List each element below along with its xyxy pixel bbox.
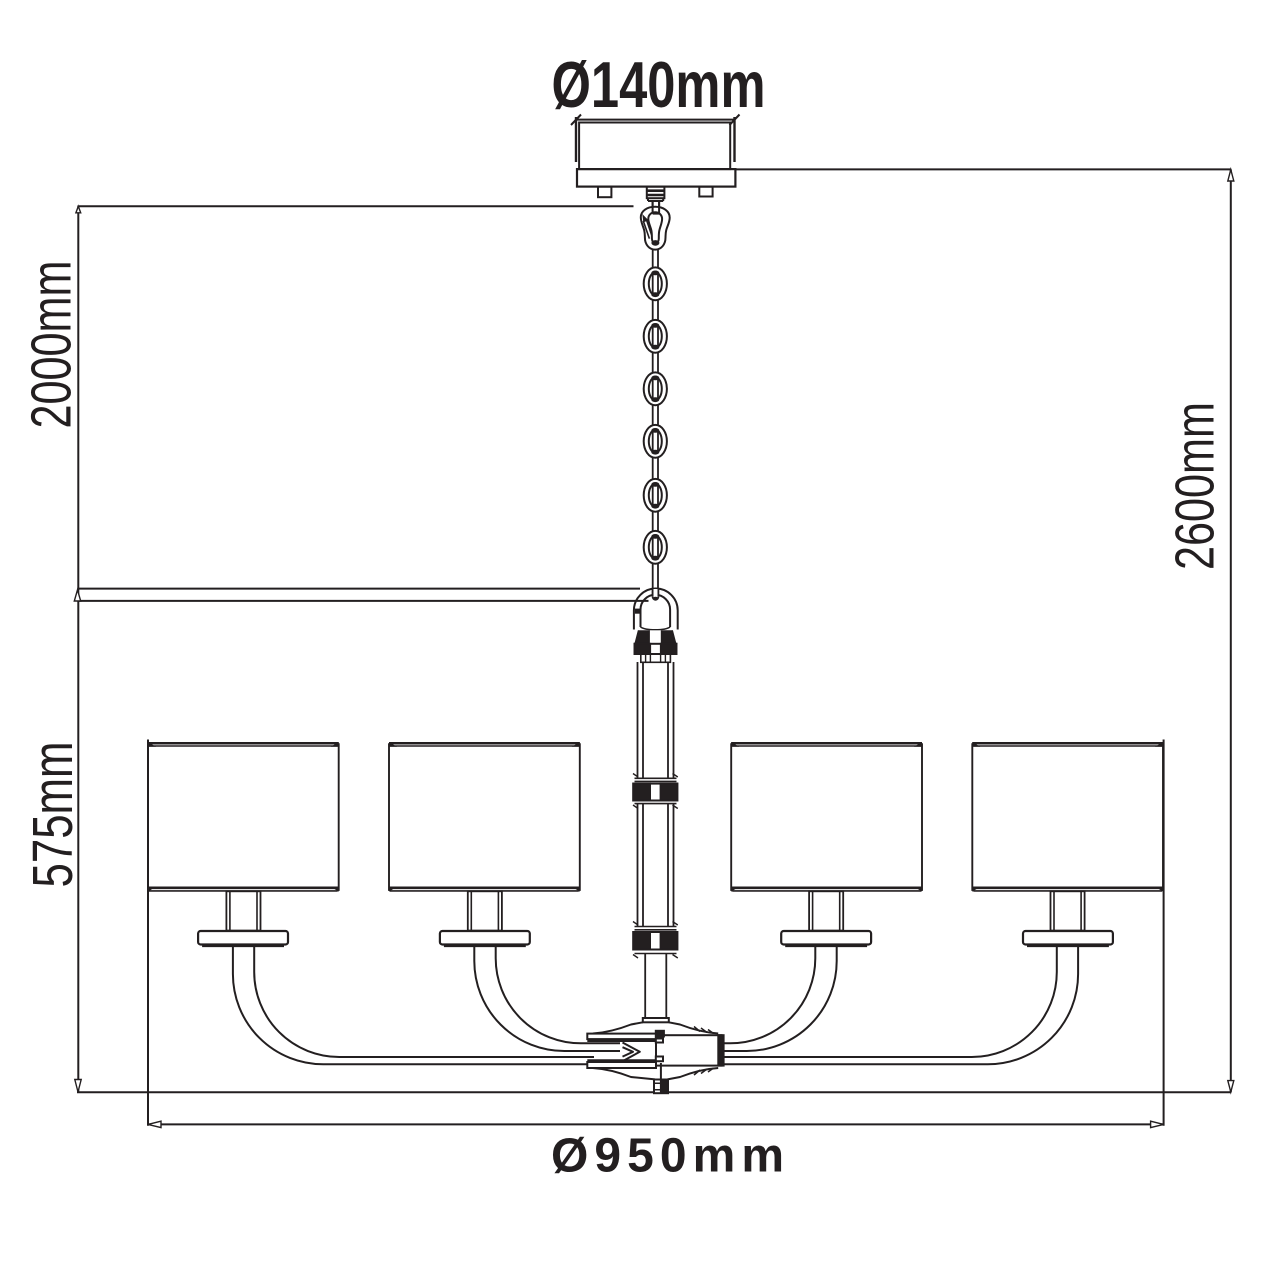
- svg-text:Ø140mm: Ø140mm: [552, 48, 766, 121]
- svg-text:2600mm: 2600mm: [1163, 402, 1225, 570]
- svg-text:Ø950mm: Ø950mm: [551, 1130, 784, 1183]
- svg-text:2000mm: 2000mm: [20, 261, 84, 429]
- svg-text:575mm: 575mm: [21, 742, 85, 888]
